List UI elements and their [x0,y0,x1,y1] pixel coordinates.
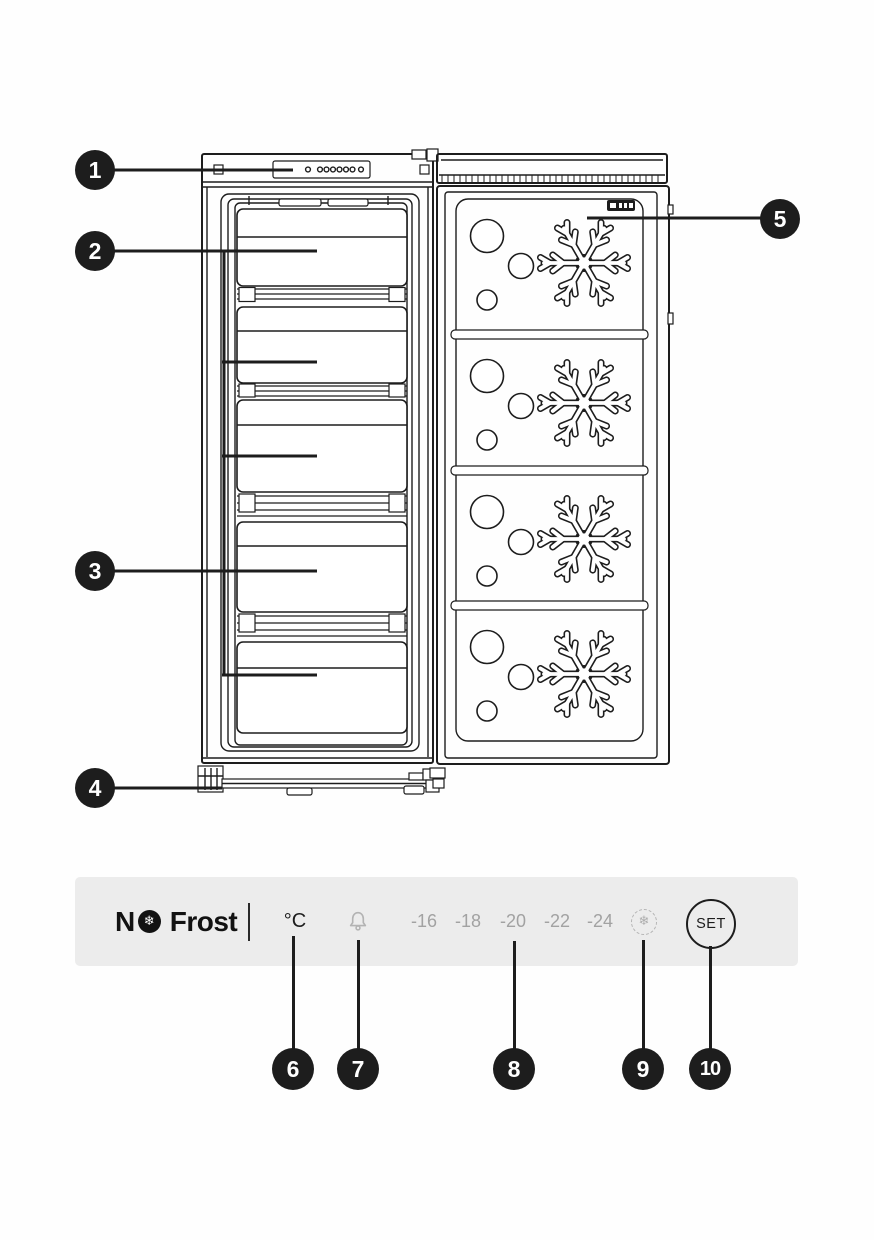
door-shelf-bar [451,466,648,475]
callout-7: 7 [337,1048,379,1090]
callout-1: 1 [75,150,293,190]
drawer-4 [237,522,407,612]
divider [248,903,250,941]
door-hinge-bottom-pin [433,779,444,788]
manual-page: 1 2 3 4 5 N ❄ [0,0,874,1240]
callout-6: 6 [272,1048,314,1090]
freezer-drawers [237,209,407,733]
svg-text:3: 3 [89,558,102,584]
temp-option-16: -16 [402,877,446,966]
snowflake-logo-icon: ❄ [138,910,161,933]
hinge-cap-right [420,165,429,174]
drawer-5 [237,642,407,733]
door-side-pin [668,205,673,214]
door-top-gasket [442,175,658,182]
temp-option-24: -24 [578,877,622,966]
freezer-diagram: 1 2 3 4 5 [0,0,874,830]
temp-option-22: -22 [535,877,579,966]
door-hinge-top [412,150,426,159]
drawer-3 [237,400,407,492]
callout-line-10 [709,946,712,1049]
set-button: SET [686,899,736,949]
callout-8: 8 [493,1048,535,1090]
svg-text:2: 2 [89,238,102,264]
door-shelf-bar [451,330,648,339]
door-side-pin [668,313,673,324]
drawer-1 [237,209,407,286]
freezer-door [412,149,673,788]
logo-text-frost: Frost [170,906,238,938]
svg-text:5: 5 [774,206,787,232]
callout-line-9 [642,940,645,1049]
temp-option-18: -18 [446,877,490,966]
callout-line-8 [513,941,516,1049]
celsius-indicator: °C [271,877,319,966]
no-frost-logo: N ❄ Frost [115,877,237,966]
callout-10: 10 [689,1048,731,1090]
door-shelf-bar [451,601,648,610]
control-panel-strip: N ❄ Frost °C -16 -18 -20 -22 -24 ❄ SET [75,877,798,966]
svg-text:4: 4 [89,775,102,801]
svg-text:1: 1 [89,157,102,183]
callout-9: 9 [622,1048,664,1090]
mini-label-badge [607,200,635,211]
callout-line-7 [357,940,360,1049]
callout-line-6 [292,936,295,1049]
logo-text-n: N [115,906,135,938]
door-hinge-bottom [430,768,445,778]
drawer-2 [237,307,407,383]
